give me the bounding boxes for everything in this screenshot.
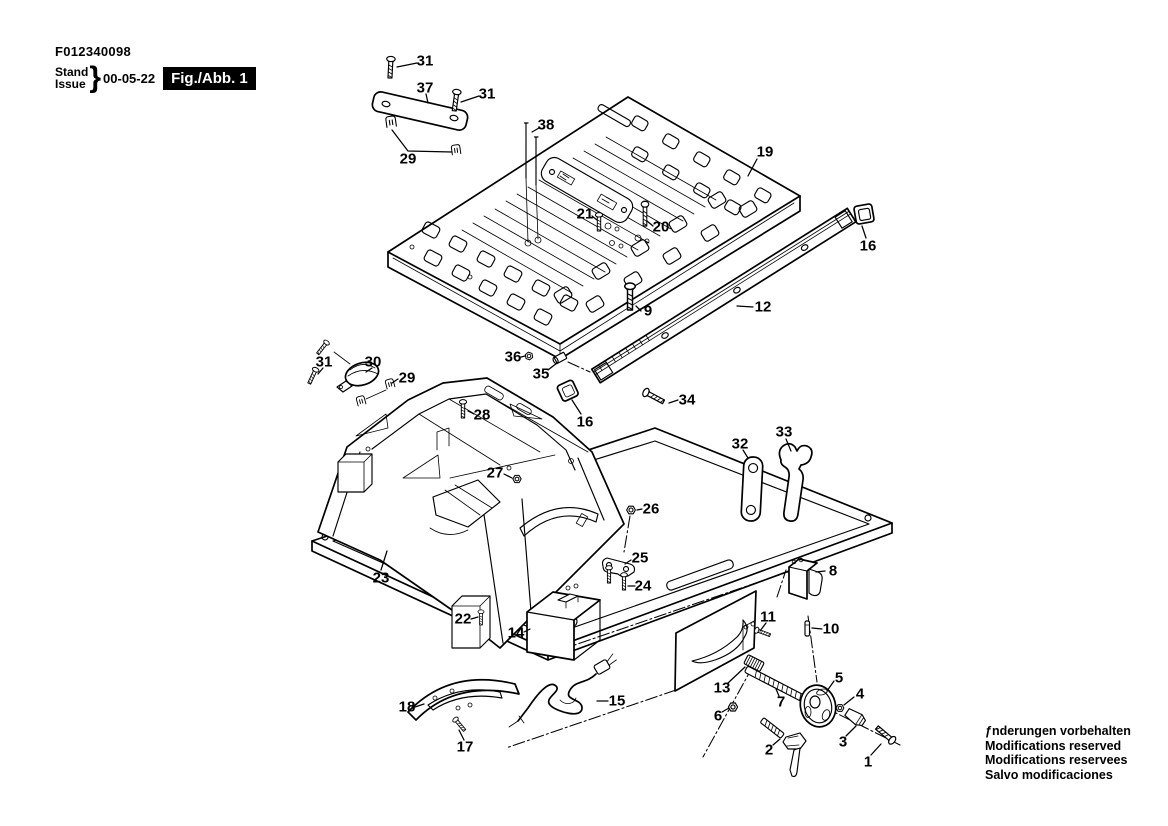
clip-29-a — [386, 116, 397, 128]
end-cap-16-left — [556, 379, 579, 402]
callout-13: 13 — [714, 680, 731, 697]
callout-leader-2 — [773, 739, 780, 745]
callout-33: 33 — [776, 424, 793, 441]
callout-3: 3 — [839, 734, 847, 751]
callout-19: 19 — [757, 144, 774, 161]
knob-3 — [844, 707, 867, 728]
threaded-rod-7 — [744, 666, 807, 703]
callout-leader-4 — [844, 697, 854, 705]
callout-23: 23 — [373, 570, 390, 587]
callout-29: 29 — [400, 151, 417, 168]
nut-27 — [513, 475, 521, 482]
callout-4: 4 — [856, 686, 865, 703]
callout-14: 14 — [508, 625, 525, 642]
callout-8: 8 — [829, 563, 837, 580]
callout-leader-12 — [737, 306, 753, 307]
callout-31: 31 — [316, 354, 333, 371]
nut-6 — [728, 703, 737, 711]
callout-29: 29 — [399, 370, 416, 387]
callout-7: 7 — [777, 694, 785, 711]
nut-4 — [836, 705, 844, 712]
callout-leader-16 — [572, 400, 581, 414]
callout-leader-31 — [461, 96, 479, 102]
sector-bracket-18 — [408, 680, 519, 733]
callout-21: 21 — [577, 206, 594, 223]
callout-35: 35 — [533, 366, 550, 383]
pin-10 — [805, 621, 810, 636]
callout-2: 2 — [765, 742, 773, 759]
callout-38: 38 — [538, 117, 555, 134]
callout-12: 12 — [755, 299, 772, 316]
callout-leader-8 — [816, 571, 825, 572]
callout-leader-31 — [397, 63, 417, 67]
callout-37: 37 — [417, 80, 434, 97]
clip-29-d — [356, 395, 366, 406]
callout-36: 36 — [505, 349, 522, 366]
callout-25: 25 — [632, 550, 649, 567]
callout-leader-29 — [392, 130, 452, 152]
callout-26: 26 — [643, 501, 660, 518]
callout-leader-16 — [862, 226, 866, 238]
callout-34: 34 — [679, 392, 696, 409]
power-cord-15 — [509, 654, 618, 727]
table-top-19 — [388, 97, 800, 359]
callout-leader-3 — [846, 726, 856, 736]
bolt-34 — [641, 387, 665, 405]
screw-1 — [874, 724, 897, 745]
callout-10: 10 — [823, 621, 840, 638]
callout-27: 27 — [487, 465, 504, 482]
wrench-32 — [741, 457, 763, 522]
clip-29-c — [385, 378, 395, 389]
callout-5: 5 — [835, 670, 843, 687]
nut-26 — [627, 506, 636, 514]
callout-24: 24 — [635, 578, 652, 595]
base-23 — [312, 378, 892, 660]
callout-18: 18 — [399, 699, 416, 716]
callout-leader-13 — [728, 667, 745, 683]
callout-16: 16 — [577, 414, 594, 431]
foot-clip-left — [338, 454, 372, 492]
callout-17: 17 — [457, 739, 474, 756]
callout-20: 20 — [653, 219, 670, 236]
callout-leader-36 — [521, 356, 525, 357]
cover-plate-37-group — [371, 56, 469, 155]
callout-leader-10 — [812, 628, 822, 629]
callout-1: 1 — [864, 754, 872, 771]
callout-leader-1 — [871, 744, 881, 755]
callout-28: 28 — [474, 407, 491, 424]
callout-9: 9 — [644, 303, 652, 320]
screw-31-a — [386, 56, 396, 78]
exploded-parts-diagram-page: F012340098 Stand Issue } 00-05-22 Fig./A… — [0, 0, 1168, 826]
callout-22: 22 — [455, 611, 472, 628]
switch-8 — [789, 558, 822, 599]
callout-32: 32 — [732, 436, 749, 453]
handwheel-5 — [796, 681, 840, 730]
clip-29-b — [451, 144, 461, 154]
callout-31: 31 — [417, 53, 434, 70]
callout-16: 16 — [860, 238, 877, 255]
callout-11: 11 — [760, 609, 776, 626]
callout-6: 6 — [714, 708, 722, 725]
callout-leader-34 — [669, 400, 678, 403]
callout-leader-35 — [548, 363, 557, 370]
callout-15: 15 — [609, 693, 626, 710]
exploded-view-drawing: 3137313829192120169123635313029163428323… — [0, 0, 1168, 826]
callout-31: 31 — [479, 86, 496, 103]
callout-leader-5 — [827, 681, 834, 691]
callout-30: 30 — [365, 354, 382, 371]
end-cap-16-right — [854, 204, 875, 225]
